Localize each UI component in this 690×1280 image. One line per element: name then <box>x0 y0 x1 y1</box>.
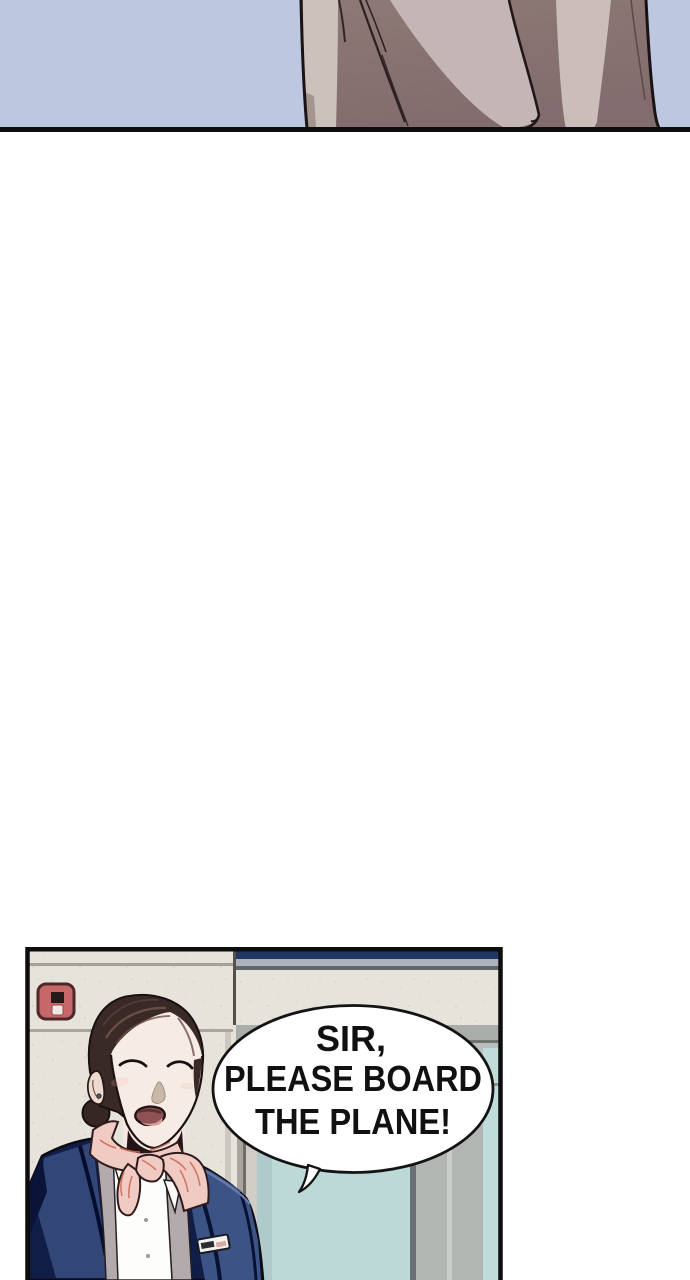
svg-text:SIR,: SIR, <box>316 1018 386 1059</box>
svg-text:PLEASE BOARD: PLEASE BOARD <box>224 1058 482 1099</box>
svg-text:THE PLANE!: THE PLANE! <box>255 1101 451 1142</box>
